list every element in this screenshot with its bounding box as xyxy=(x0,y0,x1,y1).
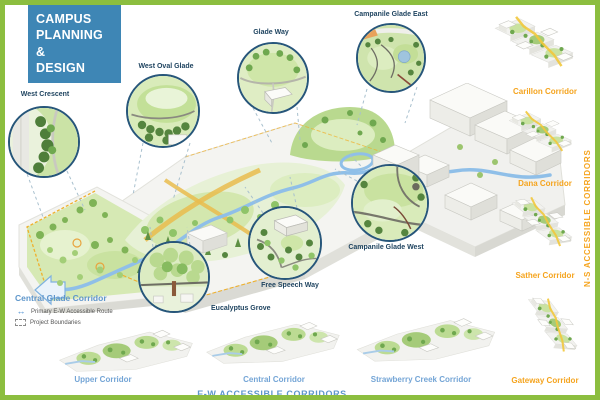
legend-item-accessible-route: ↔ Primary E-W Accessible Route xyxy=(15,307,175,316)
ns-corridors-heading: N-S ACCESSIBLE CORRIDORS xyxy=(583,151,592,287)
west-crescent-illustration xyxy=(10,108,78,176)
callout-label: Glade Way xyxy=(221,29,321,36)
callout-label: Campanile Glade East xyxy=(341,11,441,18)
legend-item-project-boundaries: Project Boundaries xyxy=(15,319,175,326)
gateway-corridor-illustration xyxy=(511,287,589,373)
ew-corridors-heading: E-W ACCESSIBLE CORRIDORS xyxy=(172,389,372,399)
callout-campanile-glade-west xyxy=(351,164,429,242)
free-speech-way-illustration xyxy=(250,208,320,278)
legend: Central Glade Corridor ↔ Primary E-W Acc… xyxy=(15,293,175,329)
page-title: CAMPUS PLANNING & DESIGN xyxy=(28,5,121,83)
ew-corridor-label: Upper Corridor xyxy=(33,375,173,384)
ns-corridor-label: Carillon Corridor xyxy=(490,87,600,96)
dana-corridor-illustration xyxy=(503,103,579,173)
double-arrow-icon: ↔ xyxy=(15,307,27,316)
legend-item-label: Project Boundaries xyxy=(30,320,81,326)
campanile-glade-west-illustration xyxy=(353,166,427,240)
glade-way-illustration xyxy=(239,44,307,112)
callout-label: West Crescent xyxy=(5,91,85,98)
title-line: CAMPUS xyxy=(36,11,114,27)
ew-corridor-label: Strawberry Creek Corridor xyxy=(351,375,491,384)
strawberry-creek-corridor-illustration xyxy=(349,307,503,367)
ew-corridor-label: Central Corridor xyxy=(204,375,344,384)
callout-label: Campanile Glade West xyxy=(336,244,436,251)
legend-item-label: Primary E-W Accessible Route xyxy=(31,309,113,315)
central-corridor-illustration xyxy=(203,309,343,371)
callout-west-oval-glade xyxy=(126,74,200,148)
callout-campanile-glade-east xyxy=(356,23,426,93)
campanile-glade-east-illustration xyxy=(358,25,424,91)
callout-west-crescent xyxy=(8,106,80,178)
callout-glade-way xyxy=(237,42,309,114)
ns-corridor-label: Gateway Corridor xyxy=(490,376,600,385)
legend-heading: Central Glade Corridor xyxy=(15,293,175,303)
callout-free-speech-way xyxy=(248,206,322,280)
sather-corridor-illustration xyxy=(501,189,581,267)
dashed-boundary-icon xyxy=(15,319,26,326)
title-line: DESIGN xyxy=(36,60,114,76)
carillon-corridor-illustration xyxy=(481,15,589,85)
poster-page: CAMPUS PLANNING & DESIGN xyxy=(0,0,600,400)
callout-label: West Oval Glade xyxy=(116,63,216,70)
callout-label: Free Speech Way xyxy=(240,282,340,289)
west-oval-glade-illustration xyxy=(128,76,198,146)
title-line: PLANNING & xyxy=(36,27,114,60)
